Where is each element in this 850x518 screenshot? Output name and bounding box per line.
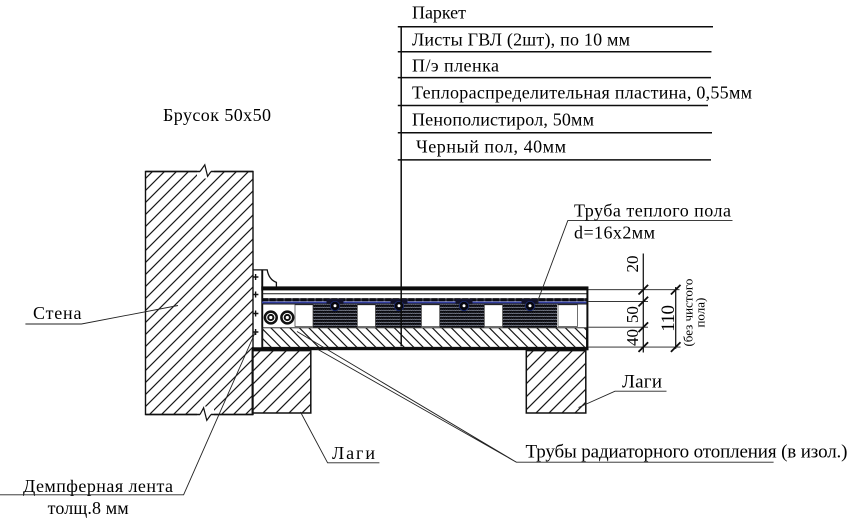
svg-text:Трубы радиаторного отопления (: Трубы радиаторного отопления (в изол.)	[526, 442, 848, 463]
svg-text:d=16x2мм: d=16x2мм	[574, 223, 655, 243]
svg-text:Пенополистирол, 50мм: Пенополистирол, 50мм	[412, 110, 594, 130]
svg-text:П/э пленка: П/э пленка	[412, 56, 499, 76]
svg-text:Листы ГВЛ (2шт), по 10 мм: Листы ГВЛ (2шт), по 10 мм	[412, 30, 630, 51]
svg-text:40: 40	[623, 329, 642, 346]
svg-text:110: 110	[658, 305, 679, 332]
svg-text:Лаги: Лаги	[622, 372, 662, 393]
svg-text:50: 50	[623, 306, 642, 323]
svg-text:Черный пол, 40мм: Черный пол, 40мм	[416, 137, 566, 157]
svg-text:Лаги: Лаги	[332, 443, 375, 463]
svg-text:20: 20	[623, 256, 642, 273]
svg-text:Труба теплого пола: Труба теплого пола	[574, 201, 731, 221]
svg-text:Теплораспределительная пластин: Теплораспределительная пластина, 0,55мм	[412, 83, 752, 103]
svg-text:толщ.8 мм: толщ.8 мм	[48, 498, 129, 518]
svg-text:Демпферная лента: Демпферная лента	[23, 476, 173, 496]
svg-text:Паркет: Паркет	[412, 3, 466, 23]
svg-text:Брусок 50x50: Брусок 50x50	[163, 105, 271, 125]
svg-text:пола): пола)	[693, 298, 708, 328]
svg-text:Стена: Стена	[33, 303, 82, 323]
